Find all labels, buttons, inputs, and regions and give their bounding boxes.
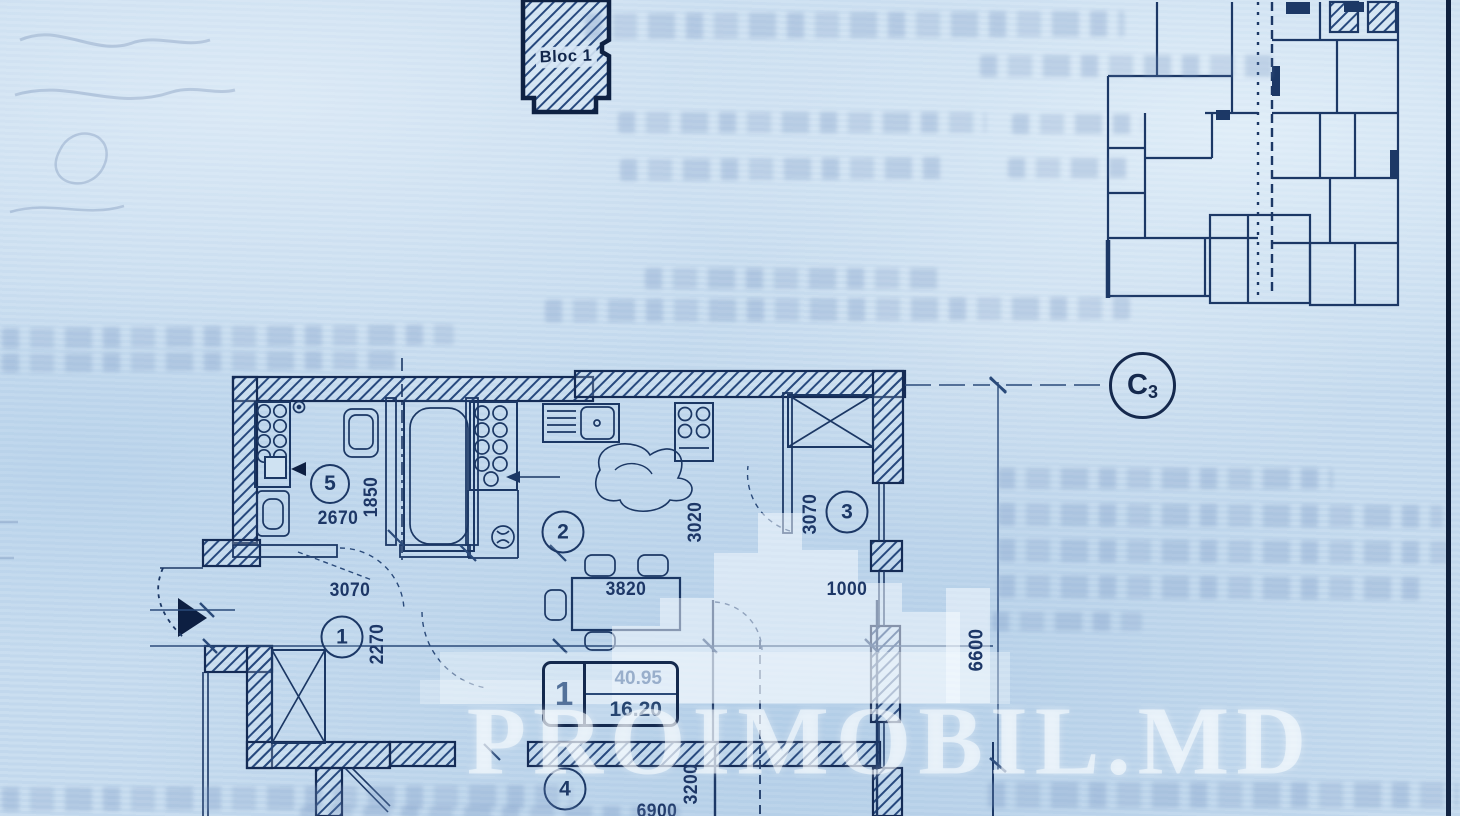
bleedthrough-artifact: [1008, 158, 1136, 178]
axis-letter: C: [1127, 369, 1148, 402]
building-overview-plan: [1108, 2, 1398, 305]
dim-side-total: 6600: [966, 629, 989, 672]
bleedthrough-artifact: [1012, 114, 1142, 134]
bleedthrough-artifact: [300, 806, 680, 816]
bloc-marker-label: Bloc 1: [535, 45, 596, 68]
bleedthrough-artifact: [620, 157, 950, 181]
bleedthrough-artifact: [2, 324, 454, 349]
axis-marker-c3: C 3: [1109, 352, 1176, 419]
bleedthrough-artifact: [980, 55, 1280, 77]
bleedthrough-artifact: [645, 268, 945, 289]
dim-room3-width: 1000: [827, 579, 868, 601]
bleedthrough-artifact: [2, 350, 398, 372]
bleedthrough-artifact: [998, 539, 1448, 564]
bleedthrough-scribbles: [0, 35, 235, 558]
room-number-room3: 3: [826, 491, 869, 534]
bleedthrough-artifact: [545, 296, 1130, 322]
dim-bathroom-width: 2670: [318, 508, 359, 530]
bleedthrough-artifact: [998, 468, 1333, 489]
watermark-text: PROIMOBIL.MD: [467, 686, 1314, 797]
bleedthrough-artifact: [618, 112, 986, 133]
scan-edge-line: [1446, 0, 1451, 816]
room-number-kitchen: 2: [542, 511, 585, 554]
bleedthrough-artifact: [998, 575, 1428, 600]
scanned-floor-plan-document: Bloc 1 5 2 3 1 4 2670 1850 3070 2270 382…: [0, 0, 1460, 816]
dim-hall-depth: 2270: [367, 624, 389, 665]
axis-number: 3: [1148, 382, 1158, 403]
room-number-bathroom: 5: [310, 464, 350, 504]
dim-room3-depth: 3070: [800, 494, 822, 535]
bleedthrough-artifact: [585, 11, 1125, 40]
bleedthrough-artifact: [992, 612, 1142, 631]
bleedthrough-artifact: [998, 503, 1443, 528]
room-number-hall: 1: [321, 616, 364, 659]
dim-kitchen-table: 3820: [606, 579, 647, 601]
dim-kitchen-depth: 3020: [685, 502, 707, 543]
dim-bathroom-depth: 1850: [361, 477, 383, 518]
dim-hall-width: 3070: [330, 580, 371, 602]
